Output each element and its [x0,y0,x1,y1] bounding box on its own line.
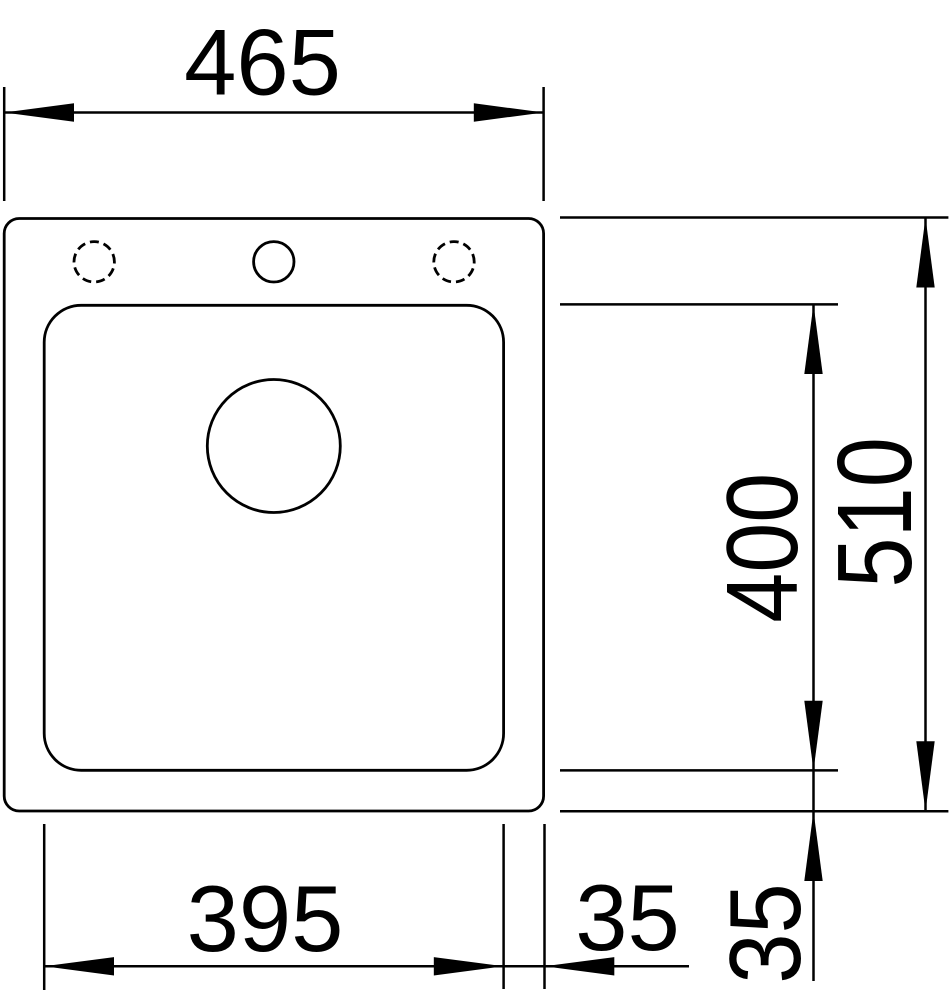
svg-text:465: 465 [184,10,341,115]
svg-text:395: 395 [187,866,344,971]
svg-text:35: 35 [575,865,680,970]
svg-text:510: 510 [815,437,934,588]
svg-text:35: 35 [709,883,822,983]
svg-text:400: 400 [706,473,819,623]
